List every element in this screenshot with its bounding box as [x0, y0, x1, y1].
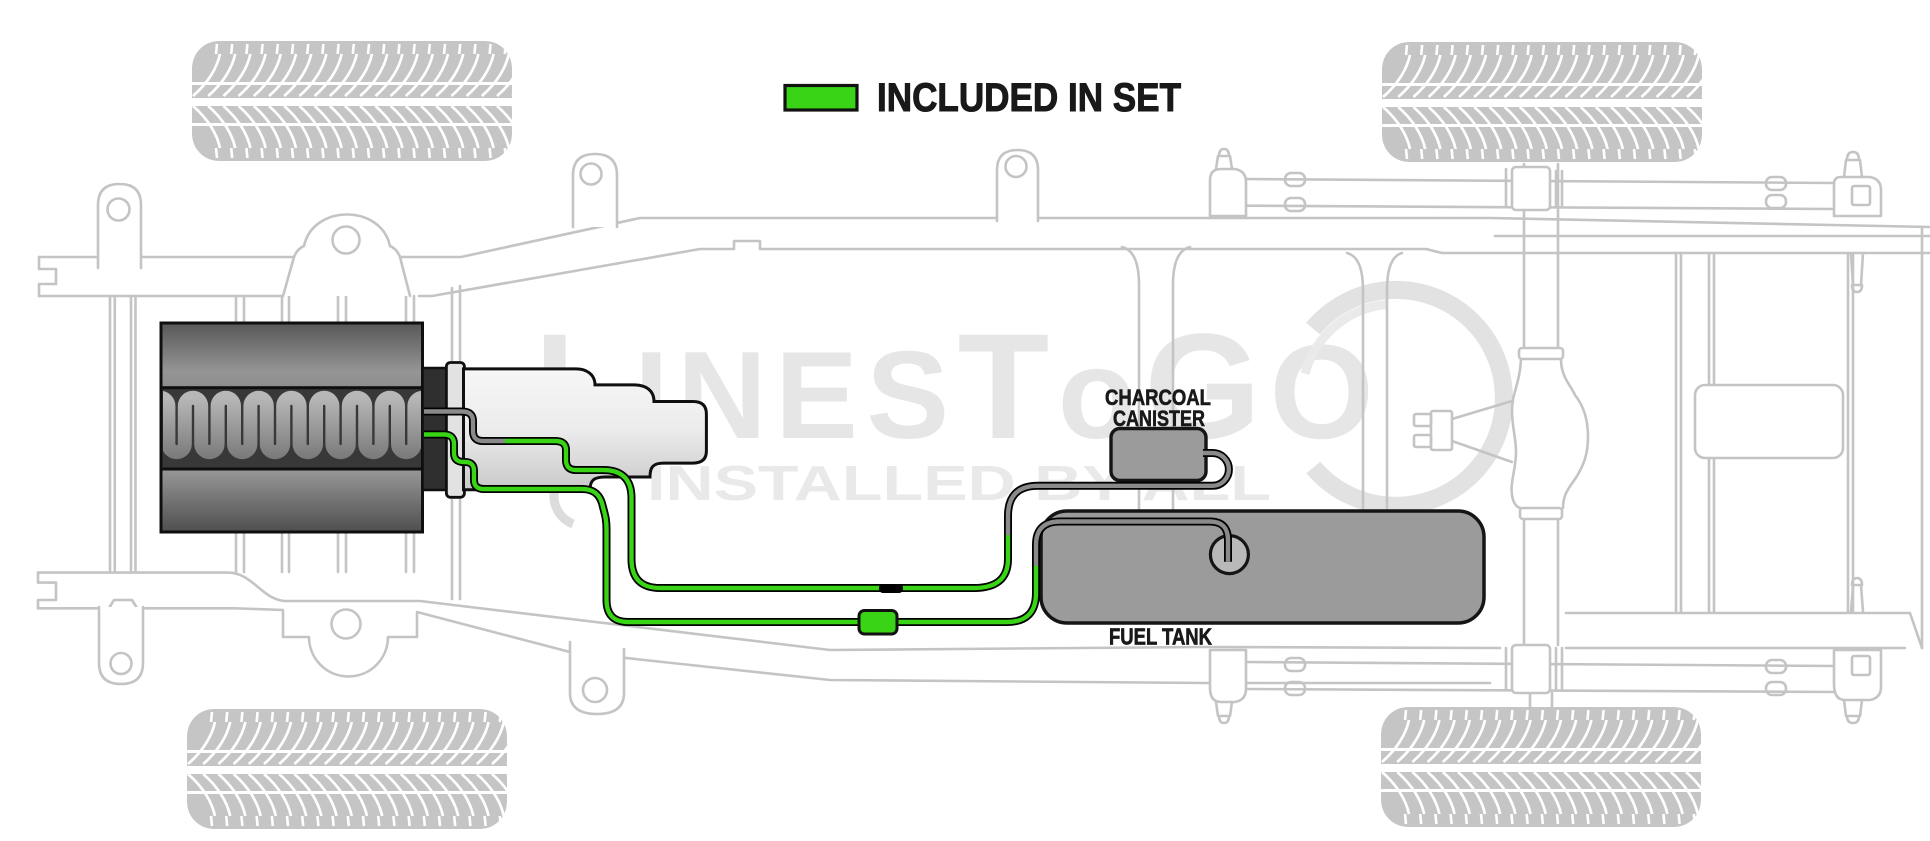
svg-text:INCLUDED IN SET: INCLUDED IN SET: [877, 76, 1181, 120]
svg-text:FUEL TANK: FUEL TANK: [1109, 624, 1212, 650]
svg-text:CANISTER: CANISTER: [1113, 406, 1205, 431]
